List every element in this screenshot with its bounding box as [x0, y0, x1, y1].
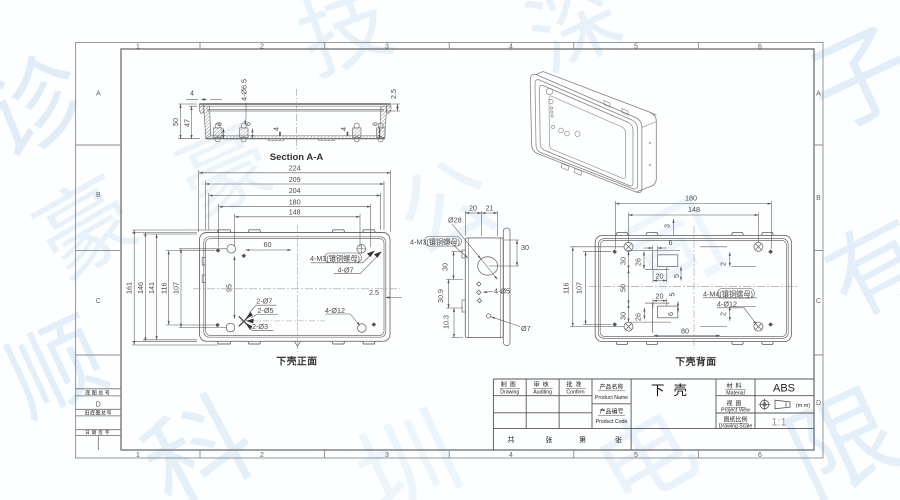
svg-text:Auditing: Auditing: [533, 390, 552, 396]
svg-text:D: D: [96, 402, 101, 409]
svg-text:4: 4: [339, 127, 348, 131]
svg-text:A: A: [96, 91, 101, 98]
svg-text:6: 6: [215, 122, 224, 126]
svg-text:95: 95: [225, 284, 234, 292]
svg-text:视图: 视图: [726, 400, 744, 408]
svg-text:A: A: [816, 91, 821, 98]
svg-text:2: 2: [260, 44, 264, 51]
svg-text:4: 4: [190, 89, 194, 98]
svg-text:底图总号: 底图总号: [85, 390, 111, 397]
svg-text:6: 6: [669, 238, 673, 247]
svg-text:5: 5: [634, 44, 638, 51]
svg-text:4-M3(镶铜螺母): 4-M3(镶铜螺母): [410, 238, 460, 247]
svg-text:30.9: 30.9: [436, 289, 445, 303]
svg-text:2.5: 2.5: [389, 89, 398, 99]
svg-text:批准: 批准: [566, 381, 584, 389]
svg-text:30: 30: [521, 243, 529, 252]
svg-text:制图: 制图: [501, 381, 519, 389]
svg-text:204: 204: [289, 186, 301, 195]
svg-text:4-Ø12: 4-Ø12: [717, 300, 737, 309]
svg-text:30: 30: [619, 257, 628, 265]
svg-text:Section A-A: Section A-A: [270, 152, 324, 163]
svg-text:旧底图总号: 旧底图总号: [85, 409, 113, 416]
svg-text:50: 50: [171, 118, 180, 126]
svg-text:Confirm: Confirm: [566, 390, 584, 396]
svg-text:2-Ø7: 2-Ø7: [256, 297, 272, 306]
svg-text:5: 5: [634, 452, 638, 459]
svg-text:产品名称: 产品名称: [599, 383, 623, 391]
svg-text:116: 116: [159, 283, 168, 294]
svg-text:Product Name: Product Name: [595, 395, 628, 401]
svg-text:1: 1: [136, 452, 140, 459]
svg-text:141: 141: [147, 282, 156, 294]
svg-text:Drawing Scale: Drawing Scale: [719, 424, 753, 430]
svg-text:4-Ø7: 4-Ø7: [338, 265, 354, 274]
svg-text:日期签字: 日期签字: [85, 429, 111, 436]
svg-text:2-Ø3: 2-Ø3: [252, 322, 268, 331]
svg-text:4: 4: [509, 452, 513, 459]
svg-text:3: 3: [385, 452, 389, 459]
svg-text:4: 4: [509, 44, 513, 51]
svg-text:2: 2: [719, 262, 728, 266]
svg-text:3: 3: [385, 44, 389, 51]
svg-text:5: 5: [672, 274, 681, 278]
svg-text:20: 20: [469, 204, 477, 213]
svg-text:3: 3: [663, 224, 672, 228]
svg-text:6: 6: [758, 44, 762, 51]
svg-text:材料: 材料: [726, 382, 744, 390]
svg-text:(m m): (m m): [796, 403, 811, 409]
svg-text:6: 6: [371, 122, 380, 126]
svg-text:224: 224: [289, 164, 301, 173]
svg-text:20: 20: [656, 291, 664, 300]
svg-text:Product Code: Product Code: [596, 419, 628, 425]
svg-text:26: 26: [634, 258, 643, 266]
svg-text:共: 共: [508, 435, 515, 444]
svg-text:116: 116: [562, 283, 571, 294]
svg-text:下壳正面: 下壳正面: [276, 355, 317, 368]
svg-text:4: 4: [272, 127, 281, 131]
svg-text:2.5: 2.5: [369, 288, 379, 297]
svg-text:审核: 审核: [534, 381, 552, 389]
svg-text:B: B: [816, 195, 821, 202]
svg-text:50: 50: [619, 284, 628, 292]
svg-text:C: C: [96, 298, 101, 305]
svg-text:产品编号: 产品编号: [599, 408, 623, 416]
svg-text:Material: Material: [726, 390, 744, 396]
svg-text:146: 146: [136, 282, 145, 294]
svg-text:1:1: 1:1: [771, 417, 786, 429]
svg-text:161: 161: [125, 282, 134, 294]
svg-text:80: 80: [681, 327, 689, 336]
svg-text:4-Ø12: 4-Ø12: [325, 306, 345, 315]
svg-text:B: B: [96, 192, 101, 199]
svg-text:180: 180: [685, 193, 697, 202]
svg-text:第: 第: [579, 435, 586, 444]
svg-text:30: 30: [441, 263, 450, 271]
svg-text:下壳: 下壳: [651, 383, 696, 398]
svg-text:107: 107: [575, 282, 584, 294]
svg-text:21: 21: [486, 204, 494, 213]
svg-text:2: 2: [719, 312, 728, 316]
svg-text:Ø7: Ø7: [521, 324, 531, 333]
svg-text:6: 6: [758, 452, 762, 459]
svg-text:60: 60: [264, 240, 272, 249]
svg-text:6: 6: [666, 312, 675, 316]
svg-text:2: 2: [260, 452, 264, 459]
svg-text:6: 6: [244, 122, 253, 126]
svg-text:张: 张: [615, 435, 622, 444]
svg-text:4-M4(镶铜螺母): 4-M4(镶铜螺母): [703, 290, 753, 299]
svg-text:Project View: Project View: [721, 408, 750, 414]
svg-text:Ø28: Ø28: [448, 216, 462, 225]
svg-text:4-Ø5: 4-Ø5: [494, 287, 510, 296]
svg-text:107: 107: [172, 282, 181, 294]
svg-text:4-M3(镶铜螺母): 4-M3(镶铜螺母): [310, 254, 360, 263]
svg-text:下壳背面: 下壳背面: [675, 355, 716, 368]
svg-text:20: 20: [656, 271, 664, 280]
svg-text:图纸比例: 图纸比例: [723, 416, 747, 424]
svg-text:26: 26: [634, 313, 643, 321]
svg-text:30: 30: [619, 312, 628, 320]
svg-text:5: 5: [668, 293, 677, 297]
svg-text:1: 1: [136, 44, 140, 51]
svg-text:ABS: ABS: [773, 383, 795, 395]
svg-text:D: D: [816, 400, 821, 407]
svg-text:209: 209: [289, 175, 301, 184]
svg-text:Drawing: Drawing: [500, 390, 519, 396]
svg-text:4-Ø6.5: 4-Ø6.5: [240, 79, 249, 101]
svg-text:47: 47: [183, 119, 192, 127]
svg-text:C: C: [816, 298, 821, 305]
svg-text:2-Ø5: 2-Ø5: [258, 306, 274, 315]
svg-text:张: 张: [546, 435, 553, 444]
svg-text:148: 148: [688, 205, 700, 214]
svg-text:10.3: 10.3: [442, 315, 451, 329]
svg-text:180: 180: [289, 197, 301, 206]
svg-text:148: 148: [289, 208, 301, 217]
